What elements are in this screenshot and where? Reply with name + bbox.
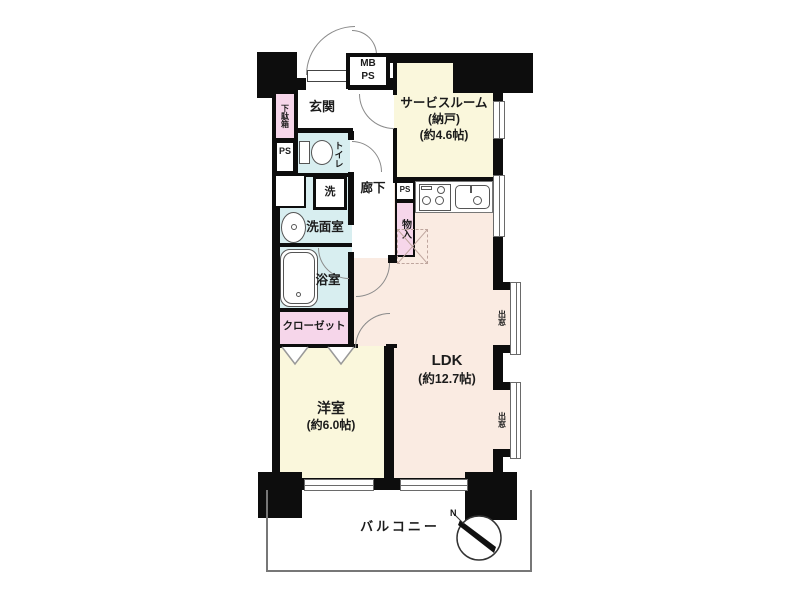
bathroom-label: 浴室 — [308, 273, 348, 287]
floor-plan: 出窓 出窓 下駄箱 PS MB PS PS 物入 洗 トイレ — [0, 0, 800, 600]
wall-hall-left-b — [348, 172, 354, 225]
pipe-space-left: PS — [274, 140, 296, 174]
pipe-space-left-label: PS — [277, 146, 293, 156]
meterbox-door-arc — [352, 30, 377, 55]
closet-label: クローゼット — [278, 320, 350, 332]
service-room-label-2: (納戸) — [397, 113, 491, 127]
kitchen-sink-drain-icon — [473, 196, 482, 205]
hallway-label: 廊下 — [352, 181, 394, 195]
wall-western-ldk — [384, 346, 394, 478]
utility-box — [274, 174, 306, 208]
wall-right-c — [493, 235, 503, 282]
window-service-right — [493, 101, 505, 139]
wall-toilet-top — [293, 128, 353, 133]
bay1-label: 出窓 — [495, 290, 509, 345]
pipe-space-kitchen-label: PS — [397, 185, 413, 194]
bay1-glass — [510, 282, 521, 355]
refrigerator-cross-icon — [398, 230, 427, 263]
stove-burner-2-icon — [422, 196, 431, 205]
kitchen-faucet-icon — [470, 186, 472, 193]
bay2-glass — [510, 382, 521, 459]
window-kitchen-right — [493, 175, 505, 237]
bay1-cap-top — [493, 282, 511, 290]
stove-burner-1-icon — [437, 186, 445, 194]
bay2-cap-top — [493, 382, 511, 390]
shoe-cabinet: 下駄箱 — [274, 92, 296, 140]
toilet-tank-icon — [299, 141, 310, 164]
bay2-cap-bottom — [493, 449, 511, 457]
wall-hall-left-a — [348, 131, 354, 140]
pipe-space-kitchen: PS — [395, 181, 415, 201]
washer-label: 洗 — [316, 186, 344, 199]
wall-washroom-bath — [276, 243, 352, 247]
wall-bath-closet — [276, 308, 352, 312]
stove-grill-icon — [421, 186, 432, 190]
bay2-label: 出窓 — [495, 392, 509, 447]
wall-right-a — [493, 85, 503, 101]
service-room-label-3: (約4.6帖) — [397, 129, 491, 143]
compass-north-label: N — [450, 508, 457, 518]
kitchen-sink-icon — [455, 185, 490, 209]
bathtub-drain-icon — [296, 292, 301, 297]
meter-box: MB PS — [346, 53, 390, 89]
ldk-label-2: (約12.7帖) — [407, 372, 487, 386]
wall-right-d — [493, 353, 503, 382]
refrigerator-space — [397, 229, 428, 264]
bay-window-2: 出窓 — [493, 382, 519, 457]
compass-icon: N — [450, 506, 508, 564]
washer-space: 洗 — [313, 176, 347, 210]
meter-box-mb-label: MB — [350, 58, 386, 70]
balcony-label: バルコニー — [340, 520, 460, 535]
bay1-cap-bottom — [493, 345, 511, 353]
western-room-label-1: 洋室 — [300, 400, 362, 416]
toilet-bowl-icon — [311, 140, 333, 165]
bay-window-1: 出窓 — [493, 282, 519, 353]
wall-right-b — [493, 137, 503, 175]
washroom-sink-drain-icon — [291, 224, 297, 230]
shoe-cabinet-label: 下駄箱 — [276, 94, 294, 138]
stove-burner-3-icon — [435, 196, 444, 205]
toilet-label: トイレ — [332, 135, 346, 173]
service-room-label-1: サービスルーム — [397, 96, 491, 110]
wall-right-e — [493, 457, 503, 474]
washroom-label: 洗面室 — [300, 220, 350, 234]
meter-box-ps-label: PS — [350, 71, 386, 83]
western-room-label-2: (約6.0帖) — [294, 419, 368, 433]
ldk-label-1: LDK — [418, 352, 476, 369]
wall-service-hall-a — [393, 63, 397, 95]
closet-folding-door-icon — [280, 346, 384, 366]
genkan-label: 玄関 — [296, 100, 348, 115]
